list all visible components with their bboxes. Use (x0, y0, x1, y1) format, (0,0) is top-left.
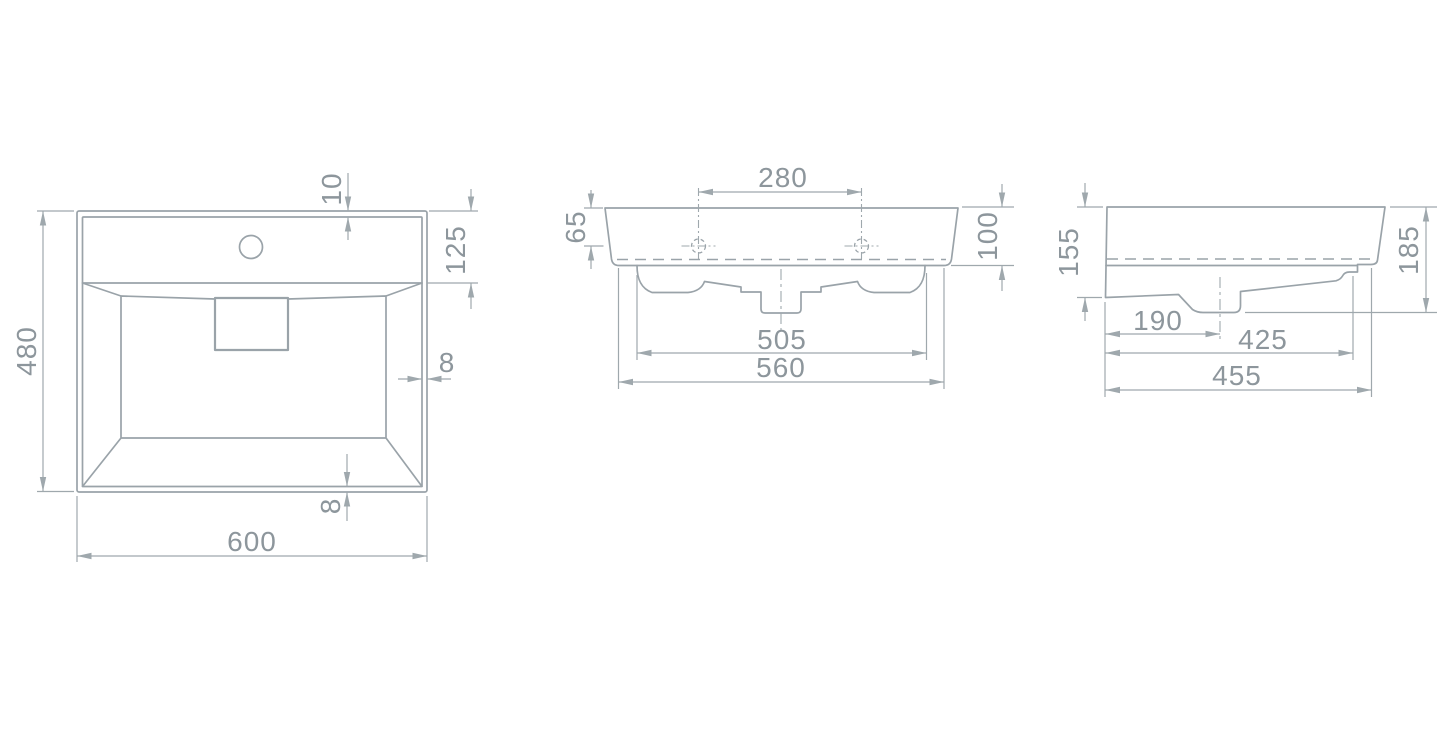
dim-label-plan-rim-side: 8 (439, 347, 456, 378)
dim-front-hole-spacing: 280 (699, 162, 862, 193)
dim-front-height: 100 (951, 184, 1014, 291)
dim-side-drain-offset: 190 (1106, 305, 1221, 336)
dim-label-front-base-width: 560 (756, 352, 806, 383)
technical-drawing: 480 600 10 125 8 8 (0, 0, 1445, 746)
dim-label-front-height: 100 (972, 211, 1003, 261)
dim-side-front-height: 155 (1053, 183, 1103, 321)
plan-view: 480 600 10 125 8 8 (11, 172, 478, 562)
plan-outer-rim (77, 211, 427, 492)
dim-label-front-bowl-width: 505 (757, 324, 807, 355)
dim-label-plan-height: 480 (11, 326, 42, 376)
dim-label-side-base-depth: 455 (1212, 360, 1262, 391)
front-mount-hole-left (682, 188, 716, 259)
dim-front-top-to-hole: 65 (560, 190, 604, 269)
dim-label-side-drain-offset: 190 (1133, 305, 1183, 336)
dim-label-plan-rim-bottom: 8 (315, 498, 346, 515)
side-view: 155 185 190 425 455 (1053, 183, 1437, 397)
dim-label-front-hole-spacing: 280 (758, 162, 808, 193)
dim-label-side-front-height: 155 (1053, 227, 1084, 277)
dim-label-side-inner-depth: 425 (1238, 324, 1288, 355)
front-mount-hole-right (845, 188, 879, 259)
plan-inner-rim (83, 217, 423, 487)
plan-faucet-hole (240, 236, 263, 259)
front-view: 280 65 100 505 560 (560, 162, 1014, 389)
dim-label-plan-deck-depth: 125 (440, 225, 471, 275)
dim-label-side-overall-height: 185 (1393, 225, 1424, 275)
dim-label-front-top-to-hole: 65 (560, 210, 591, 243)
dim-plan-height: 480 (11, 211, 74, 492)
dim-plan-rim-top: 10 (316, 172, 348, 240)
plan-drain-outlet (215, 298, 288, 350)
dim-plan-deck-depth: 125 (427, 189, 478, 309)
plan-basin-walls (83, 283, 423, 487)
dim-plan-rim-bottom: 8 (315, 454, 347, 521)
front-body (605, 208, 958, 266)
dim-label-plan-rim-top: 10 (316, 172, 347, 205)
dim-front-bowl-width: 505 (637, 273, 927, 360)
dim-label-plan-width: 600 (227, 526, 277, 557)
dim-plan-width: 600 (77, 496, 427, 562)
